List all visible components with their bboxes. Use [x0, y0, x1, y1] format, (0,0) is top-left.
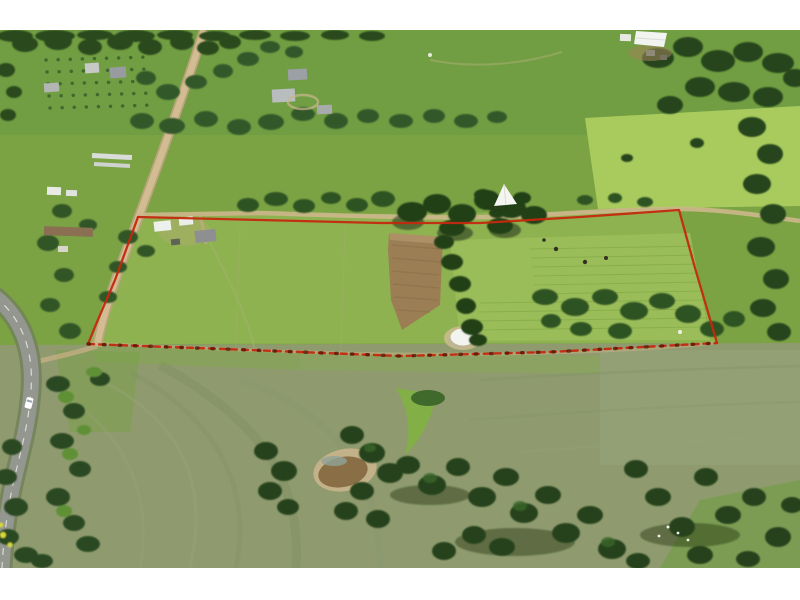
- white-border-top: [0, 0, 800, 30]
- screenshot-frame: [0, 0, 800, 600]
- vehicle-dot-top-field: [428, 53, 432, 57]
- long-brown-shed: [44, 226, 93, 237]
- gully-dark-patch: [411, 390, 445, 406]
- dam-water-sheen: [321, 456, 347, 466]
- white-border-bottom: [0, 568, 800, 600]
- aerial-photo: [0, 30, 800, 568]
